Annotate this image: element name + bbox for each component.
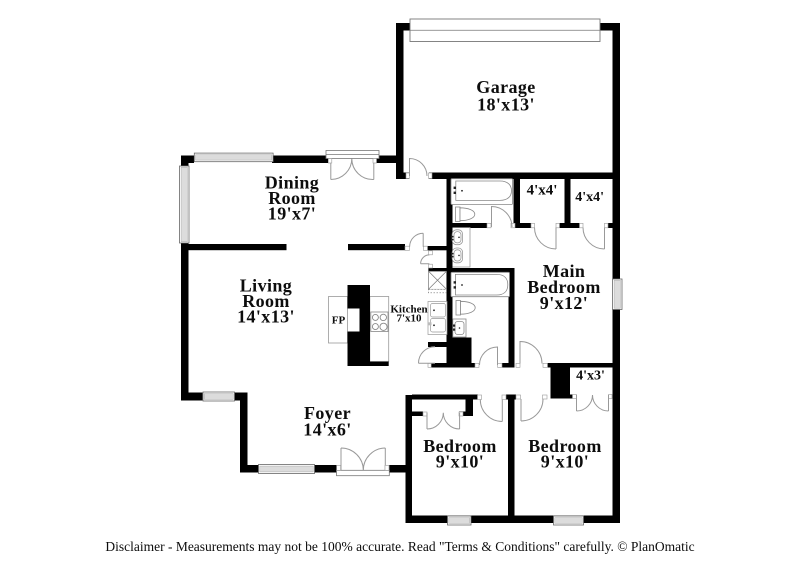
svg-text:Disclaimer - Measurements may: Disclaimer - Measurements may not be 100…	[105, 539, 694, 554]
svg-text:FP: FP	[332, 315, 346, 327]
svg-text:9'x12': 9'x12'	[540, 293, 588, 313]
svg-text:14'x6': 14'x6'	[303, 420, 351, 440]
svg-text:19'x7': 19'x7'	[268, 204, 316, 224]
svg-text:4'x4': 4'x4'	[575, 190, 604, 205]
svg-text:9'x10': 9'x10'	[541, 452, 589, 472]
svg-text:4'x3': 4'x3'	[576, 368, 605, 383]
svg-text:14'x13': 14'x13'	[237, 307, 295, 327]
svg-text:7'x10: 7'x10	[396, 313, 422, 325]
svg-text:4'x4': 4'x4'	[527, 183, 558, 199]
svg-text:18'x13': 18'x13'	[477, 95, 535, 115]
svg-text:9'x10': 9'x10'	[436, 452, 484, 472]
